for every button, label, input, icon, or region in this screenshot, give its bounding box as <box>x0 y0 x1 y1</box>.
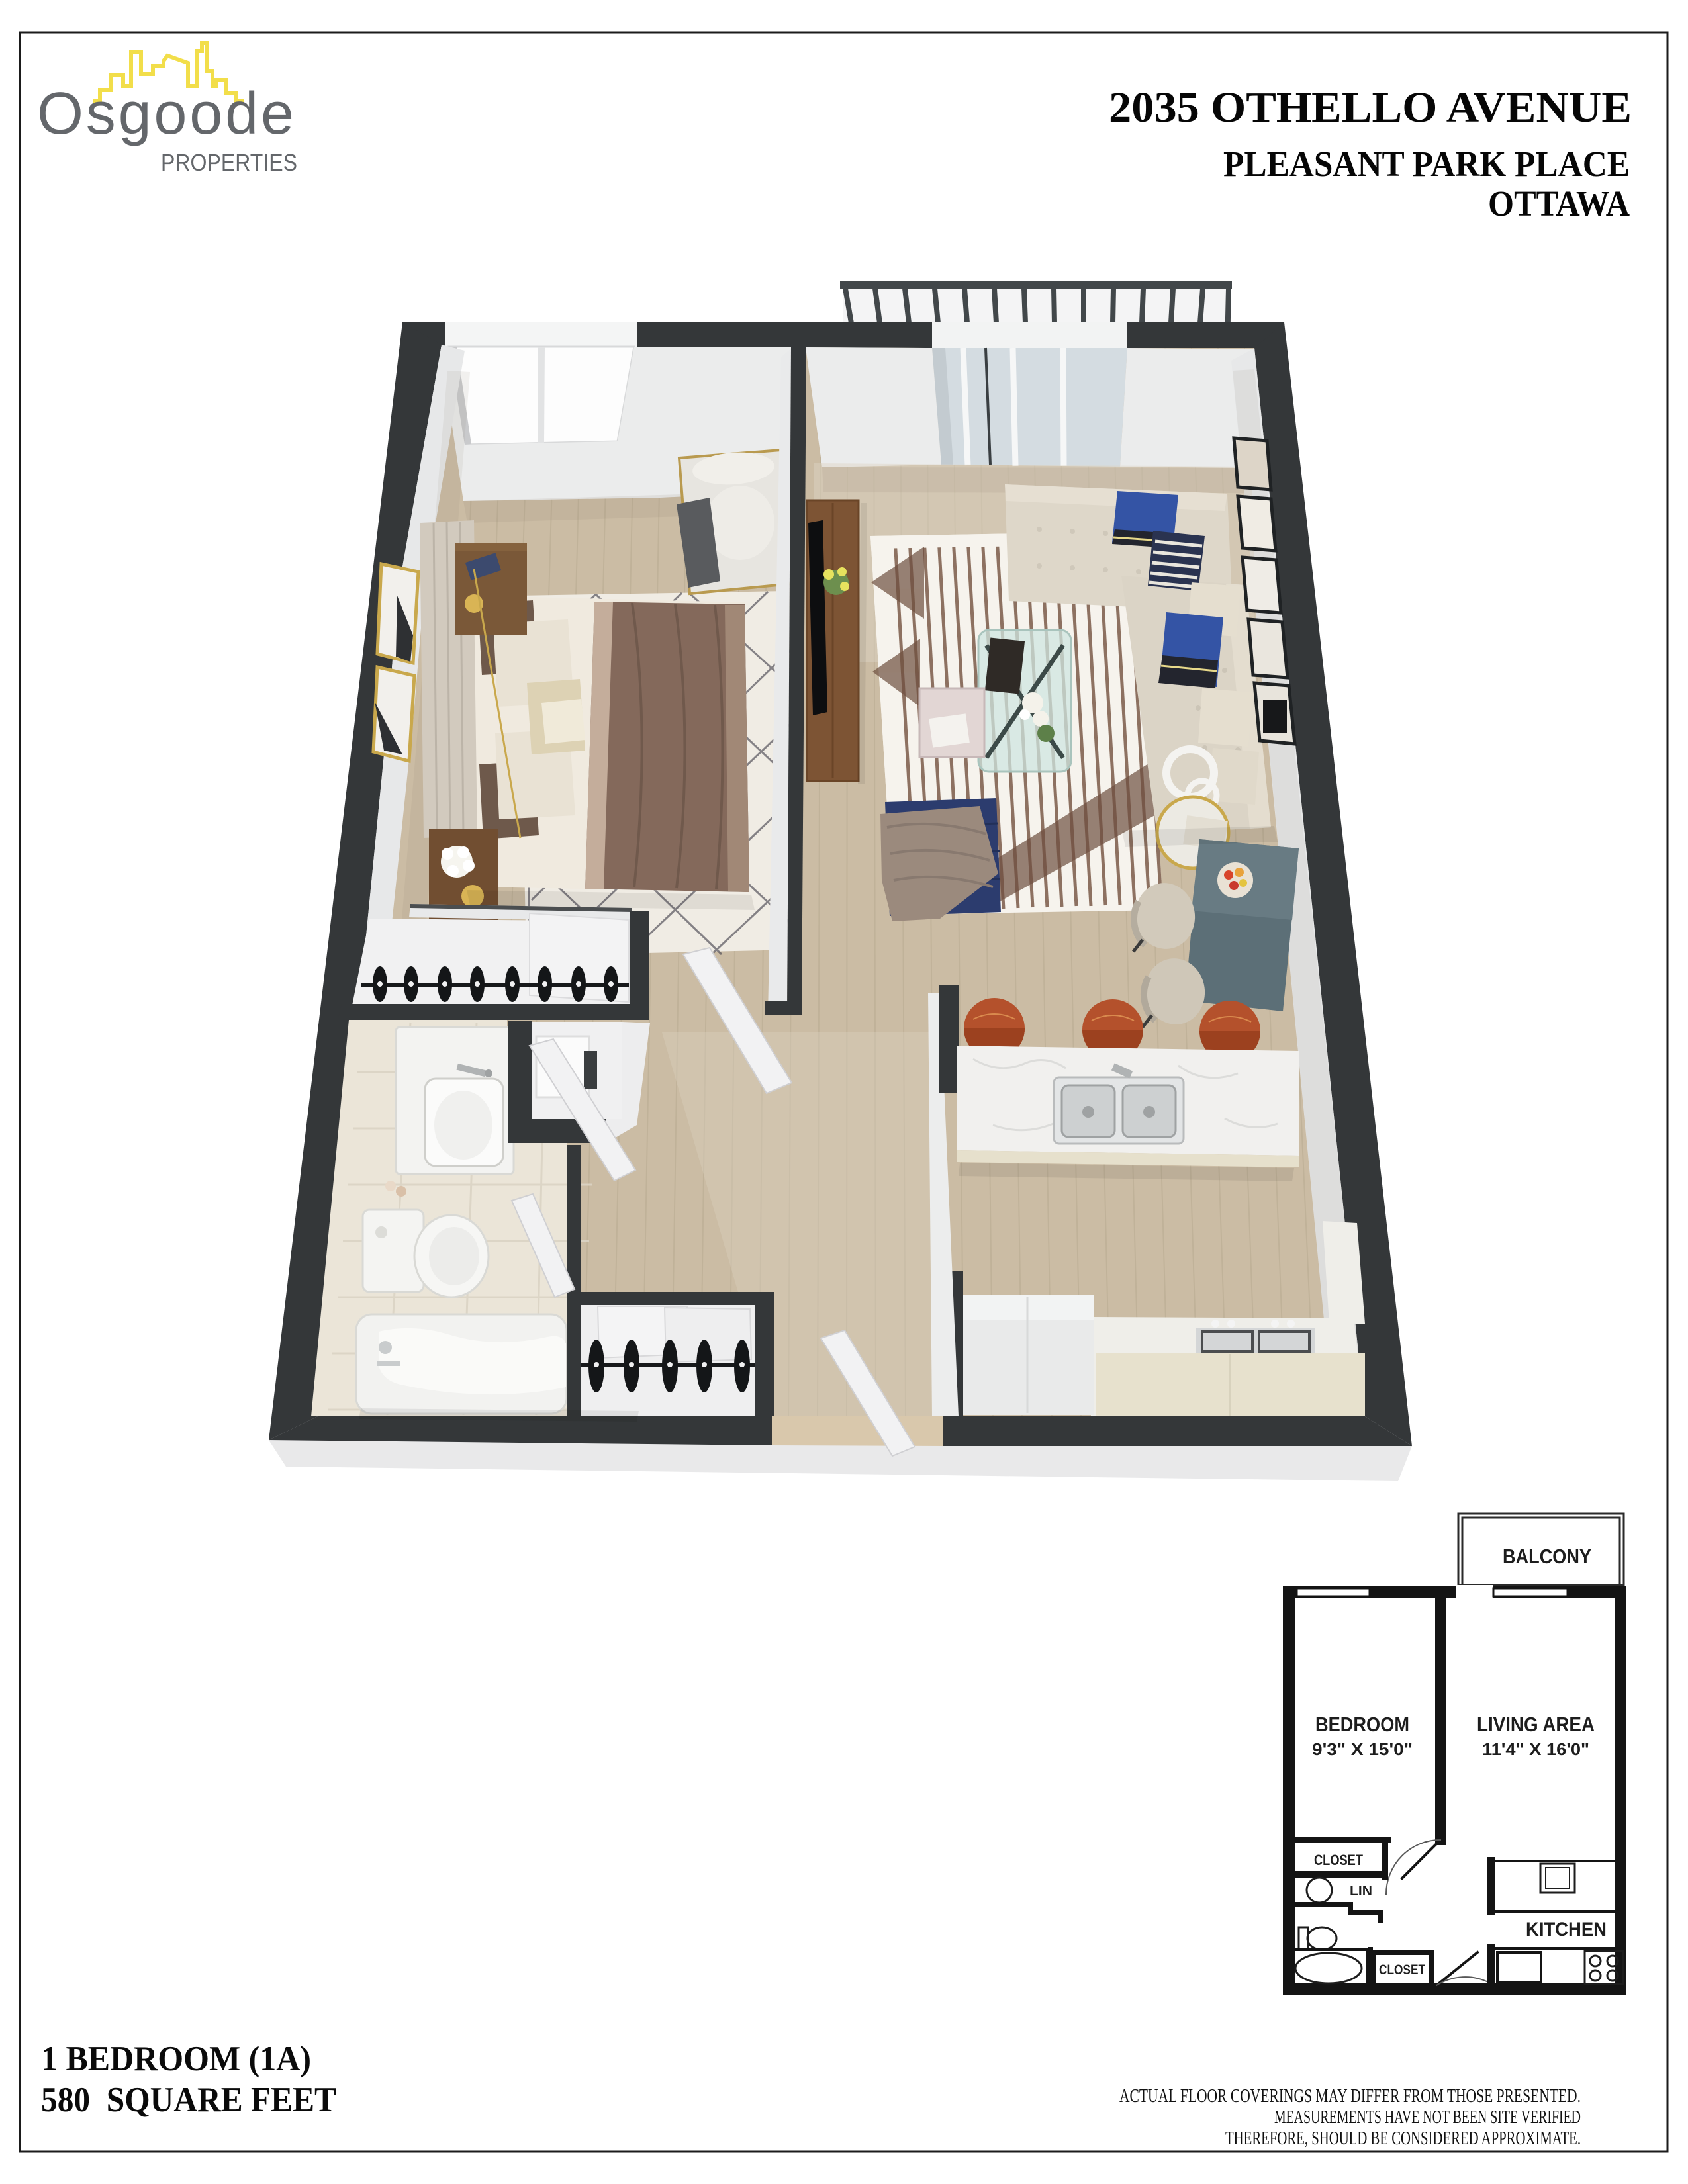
svg-text:LIN: LIN <box>1350 1884 1372 1899</box>
svg-text:KITCHEN: KITCHEN <box>1526 1919 1607 1940</box>
svg-text:Osgoode: Osgoode <box>37 81 297 147</box>
svg-text:LIVING AREA: LIVING AREA <box>1477 1713 1595 1736</box>
svg-text:PLEASANT PARK PLACE: PLEASANT PARK PLACE <box>1223 144 1630 184</box>
svg-text:CLOSET: CLOSET <box>1379 1962 1425 1978</box>
svg-text:2035 OTHELLO AVENUE: 2035 OTHELLO AVENUE <box>1109 83 1632 132</box>
svg-text:BALCONY: BALCONY <box>1503 1545 1591 1568</box>
svg-text:PROPERTIES: PROPERTIES <box>161 149 297 176</box>
svg-text:9'3" X 15'0": 9'3" X 15'0" <box>1312 1739 1413 1759</box>
svg-text:ACTUAL FLOOR COVERINGS MAY DIF: ACTUAL FLOOR COVERINGS MAY DIFFER FROM T… <box>1119 2085 1581 2107</box>
svg-text:CLOSET: CLOSET <box>1314 1852 1363 1868</box>
svg-text:580 SQUARE FEET: 580 SQUARE FEET <box>41 2081 336 2119</box>
svg-text:BEDROOM: BEDROOM <box>1315 1713 1409 1736</box>
svg-text:1 BEDROOM (1A): 1 BEDROOM (1A) <box>41 2040 311 2078</box>
svg-text:THEREFORE, SHOULD BE CONSIDERE: THEREFORE, SHOULD BE CONSIDERED APPROXIM… <box>1225 2128 1581 2149</box>
svg-text:MEASUREMENTS HAVE NOT BEEN SIT: MEASUREMENTS HAVE NOT BEEN SITE VERIFIED <box>1274 2107 1581 2128</box>
svg-text:OTTAWA: OTTAWA <box>1488 183 1630 224</box>
svg-text:11'4" X 16'0": 11'4" X 16'0" <box>1482 1739 1589 1759</box>
